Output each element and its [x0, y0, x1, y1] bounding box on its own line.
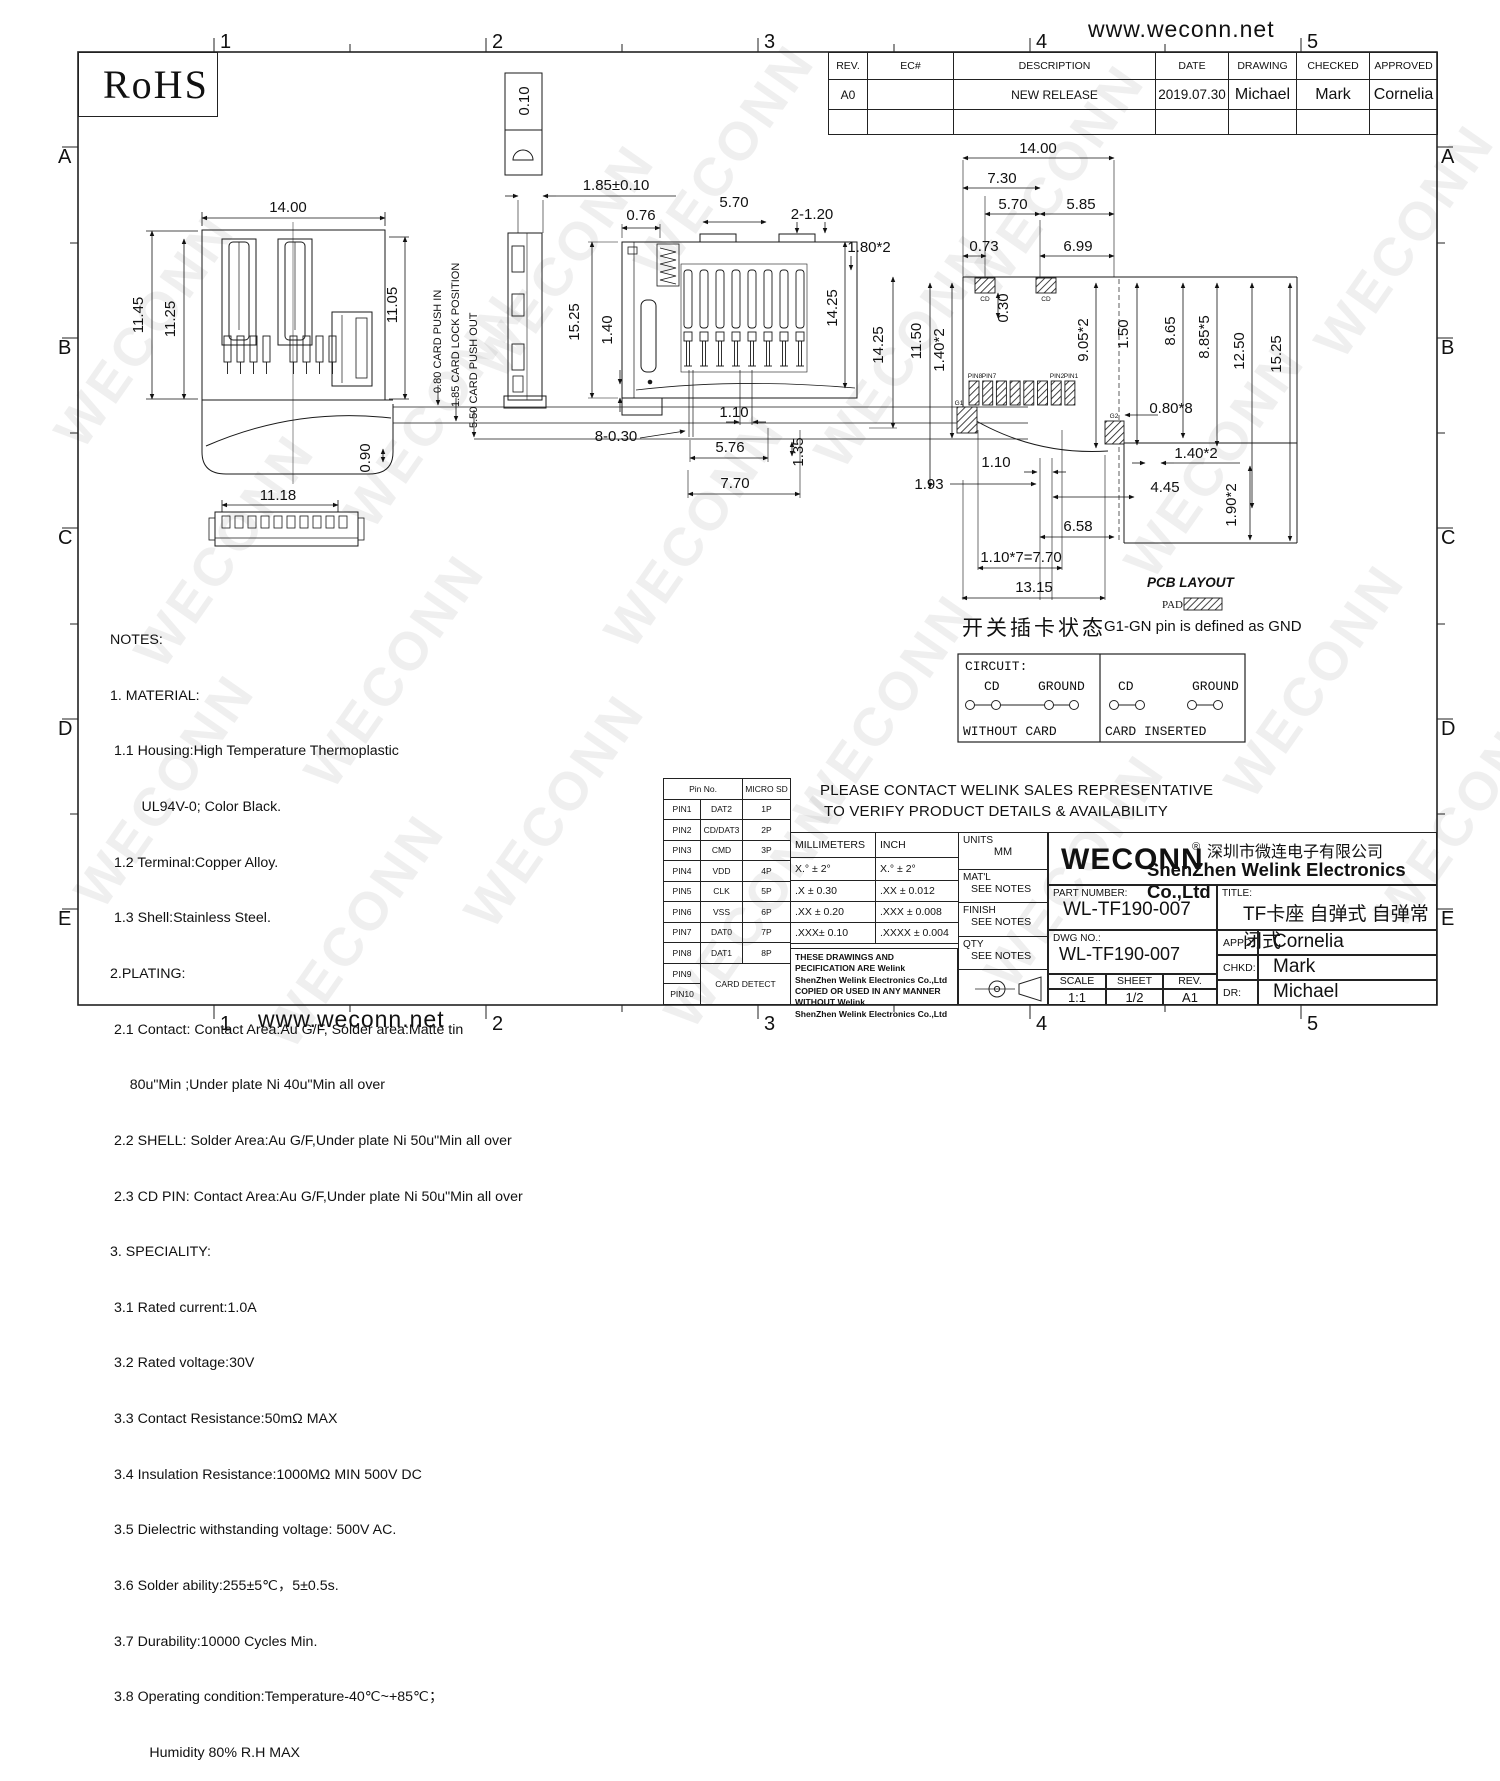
dim-label: 1.35	[790, 437, 807, 466]
svg-text:A: A	[58, 146, 72, 168]
note-line: 3. SPECIALITY:	[110, 1243, 523, 1262]
note-line: 3.8 Operating condition:Temperature-40℃~…	[110, 1688, 523, 1707]
dim-label: 8-0.30	[595, 428, 638, 445]
dim-label: 14.25	[870, 326, 887, 364]
pcb-view-dim-labels: 14.00 7.30 5.70 5.85 0.73 6.99 0.30 11.5…	[908, 140, 1285, 596]
micro-sd-header: MICRO SD	[743, 779, 791, 800]
note-line: 1.3 Shell:Stainless Steel.	[110, 909, 523, 928]
pin-table: Pin No. MICRO SD PIN1DAT21P PIN2CD/DAT32…	[663, 778, 791, 1005]
flatness-value: 0.10	[516, 86, 533, 115]
pin2-pad-label: PIN2	[1050, 373, 1065, 380]
notes-block: NOTES: 1. MATERIAL: 1.1 Housing:High Tem…	[110, 594, 523, 1781]
sheet-label: SHEET	[1106, 974, 1163, 989]
description-header: DESCRIPTION	[954, 53, 1156, 80]
approved-header: APPROVED	[1370, 53, 1438, 80]
table-row: PIN6VSS6P	[664, 902, 791, 923]
svg-text:3: 3	[764, 1013, 775, 1035]
svg-text:GROUND: GROUND	[1038, 679, 1085, 694]
card-lock-label: 1.85 CARD LOCK POSITION	[450, 263, 462, 407]
svg-text:GROUND: GROUND	[1192, 679, 1239, 694]
svg-text:4: 4	[1036, 1013, 1047, 1035]
without-card-label: WITHOUT CARD	[963, 724, 1057, 739]
pcb-layout-legend-pad: PAD	[1162, 599, 1183, 611]
dim-label: 1.40*2	[1174, 445, 1217, 462]
svg-text:CD: CD	[984, 679, 1000, 694]
svg-text:3: 3	[764, 31, 775, 53]
dwg-no-value: WL-TF190-007	[1049, 944, 1216, 965]
note-line: NOTES:	[110, 631, 523, 650]
tolerance-table: MILLIMETERSINCH X.° ± 2°X.° ± 2° .X ± 0.…	[790, 832, 959, 944]
chkd-label: CHKD:	[1217, 955, 1258, 980]
dim-label: 1.93	[914, 476, 943, 493]
dim-label: 0.90	[357, 443, 374, 472]
company-cell: WECONN ® 深圳市微连电子有限公司 ShenZhen Welink Ele…	[1048, 832, 1437, 885]
dim-label: 12.50	[1231, 332, 1248, 370]
dim-label: 14.00	[1019, 140, 1057, 157]
side-view	[504, 73, 546, 408]
dim-label: 13.15	[1015, 579, 1053, 596]
table-row: PIN2CD/DAT32P	[664, 820, 791, 841]
rohs-label: RoHS	[103, 61, 209, 108]
card-detect-cell: CARD DETECT	[701, 963, 791, 1004]
note-line: 1.2 Terminal:Copper Alloy.	[110, 854, 523, 873]
dim-label: 11.50	[908, 323, 925, 359]
rohs-box: RoHS	[78, 52, 218, 117]
scale-label: SCALE	[1048, 974, 1106, 989]
units-value: MM	[959, 846, 1047, 858]
chkd-value: Mark	[1258, 955, 1437, 980]
pin-no-header: Pin No.	[664, 779, 743, 800]
svg-text:A: A	[1441, 146, 1455, 168]
svg-text:B: B	[1441, 337, 1454, 359]
contact-note: PLEASE CONTACT WELINK SALES REPRESENTATI…	[820, 780, 1213, 822]
dim-label: 14.00	[269, 199, 307, 216]
checked-header: CHECKED	[1297, 53, 1370, 80]
switch-state-heading: 开关插卡状态	[962, 612, 1106, 642]
circuit-box-text: CIRCUIT: CD GROUND CD GROUND WITHOUT CAR…	[963, 659, 1239, 739]
note-line: 2.PLATING:	[110, 965, 523, 984]
gnd-note: G1-GN pin is defined as GND	[1104, 618, 1302, 635]
units-cell: UNITS MM	[958, 832, 1048, 870]
dim-label: 0.80*8	[1149, 400, 1192, 417]
date-value: 2019.07.30	[1156, 80, 1229, 110]
dim-label: 0.76	[626, 207, 655, 224]
dim-label: 5.70	[998, 196, 1027, 213]
pin7-pad-label: PIN7	[982, 373, 997, 380]
dr-label: DR:	[1217, 980, 1258, 1005]
qty-cell: QTY SEE NOTES	[958, 936, 1048, 970]
revision-table: REV. EC# DESCRIPTION DATE DRAWING CHECKE…	[828, 52, 1438, 135]
dwg-no-cell: DWG NO.: WL-TF190-007	[1048, 930, 1217, 974]
appd-label: APPD:	[1217, 930, 1258, 955]
website-top: www.weconn.net	[1088, 16, 1275, 43]
approved-value: Cornelia	[1370, 80, 1438, 110]
table-row: PIN8DAT18P	[664, 943, 791, 964]
note-line: 3.5 Dielectric withstanding voltage: 500…	[110, 1521, 523, 1540]
scale-value: 1:1	[1048, 989, 1106, 1005]
note-line: 3.2 Rated voltage:30V	[110, 1354, 523, 1373]
pcb-layout-legend-title: PCB LAYOUT	[1147, 575, 1236, 590]
table-row: PIN3CMD3P	[664, 840, 791, 861]
note-line: 2.3 CD PIN: Contact Area:Au G/F,Under pl…	[110, 1188, 523, 1207]
date-header: DATE	[1156, 53, 1229, 80]
mm-header: MILLIMETERS	[791, 833, 876, 858]
svg-text:4: 4	[1036, 31, 1047, 53]
dim-label: 7.30	[987, 170, 1016, 187]
projection-cell	[958, 969, 1048, 1005]
dim-label: 15.25	[566, 303, 583, 341]
dim-label: 1.40*2	[931, 328, 948, 371]
note-line: Humidity 80% R.H MAX	[110, 1744, 523, 1763]
dim-label: 1.80*2	[847, 239, 890, 256]
svg-text:D: D	[58, 718, 72, 740]
part-number-value: WL-TF190-007	[1049, 899, 1216, 921]
svg-text:5: 5	[1307, 1013, 1318, 1035]
pin1-pad-label: PIN1	[1064, 373, 1079, 380]
qty-value: SEE NOTES	[959, 950, 1047, 962]
dim-label: 11.45	[130, 297, 147, 333]
note-line: 2.1 Contact: Contact Area:Au G/F, Solder…	[110, 1021, 523, 1040]
rear-view-dim-labels: 0.76 5.70 2-1.20 1.80*2 15.25 1.40 14.25…	[566, 194, 891, 492]
checked-value: Mark	[1297, 80, 1370, 110]
drawing-value: Michael	[1229, 80, 1297, 110]
dim-label: 11.18	[260, 487, 296, 504]
table-row: PIN4VDD4P	[664, 861, 791, 882]
dim-label: 1.40	[599, 315, 616, 344]
dim-label: 9.05*2	[1075, 318, 1092, 361]
note-line: 80u"Min ;Under plate Ni 40u"Min all over	[110, 1076, 523, 1095]
matl-value: SEE NOTES	[959, 883, 1047, 895]
dim-label: 7.70	[720, 475, 749, 492]
svg-text:1: 1	[220, 31, 231, 53]
svg-text:B: B	[58, 337, 71, 359]
dim-label: 14.25	[824, 289, 841, 327]
svg-text:D: D	[1441, 718, 1455, 740]
card-push-in-label: 0.80 CARD PUSH IN	[432, 290, 444, 393]
dim-label: 1.10	[719, 404, 748, 421]
note-line: 1.1 Housing:High Temperature Thermoplast…	[110, 742, 523, 761]
svg-text:5: 5	[1307, 31, 1318, 53]
inch-header: INCH	[876, 833, 959, 858]
dim-label: 0.73	[969, 238, 998, 255]
dim-label: 5.76	[715, 439, 744, 456]
dim-label: 11.25	[162, 301, 179, 337]
table-row: PIN9 CARD DETECT	[664, 963, 791, 984]
dim-label: 1.10*7=7.70	[980, 549, 1061, 566]
dr-value: Michael	[1258, 980, 1437, 1005]
dim-label: 2-1.20	[791, 206, 834, 223]
description-value: NEW RELEASE	[954, 80, 1156, 110]
dim-label: 8.85*5	[1196, 315, 1213, 358]
svg-text:C: C	[58, 527, 72, 549]
dim-label: 1.90*2	[1223, 483, 1240, 526]
svg-text:2: 2	[492, 31, 503, 53]
dim-label: 6.58	[1063, 518, 1092, 535]
dim-label: 1.10	[981, 454, 1010, 471]
svg-text:E: E	[58, 908, 71, 930]
dim-label: 6.99	[1063, 238, 1092, 255]
table-row: PIN5CLK5P	[664, 881, 791, 902]
circuit-title: CIRCUIT:	[965, 659, 1027, 674]
dim-label: 1.50	[1115, 319, 1132, 348]
dim-label: 5.85	[1066, 196, 1095, 213]
ec-value	[868, 80, 954, 110]
matl-cell: MAT'L SEE NOTES	[958, 869, 1048, 903]
title-cell: TITLE: TF卡座 自弹式 自弹常闭式	[1217, 885, 1437, 930]
rev-value: A0	[829, 80, 868, 110]
g2-pad-label: G2	[1110, 413, 1119, 420]
table-row: PIN1DAT21P	[664, 799, 791, 820]
registered-mark: ®	[1192, 841, 1200, 853]
finish-value: SEE NOTES	[959, 916, 1047, 928]
front-view	[202, 222, 1028, 546]
rev-label: REV.	[1163, 974, 1217, 989]
dim-label: 1.85±0.10	[583, 177, 650, 194]
note-line: 3.1 Rated current:1.0A	[110, 1299, 523, 1318]
pin8-pad-label: PIN8	[968, 373, 983, 380]
cd-pad-label: CD	[980, 296, 990, 303]
card-inserted-label: CARD INSERTED	[1105, 724, 1207, 739]
drawing-header: DRAWING	[1229, 53, 1297, 80]
ec-header: EC#	[868, 53, 954, 80]
note-line: 3.3 Contact Resistance:50mΩ MAX	[110, 1410, 523, 1429]
dim-label: 0.30	[995, 293, 1012, 322]
rev-value: A1	[1163, 989, 1217, 1005]
appd-value: Cornelia	[1258, 930, 1437, 955]
dim-label: 8.65	[1162, 316, 1179, 345]
svg-text:E: E	[1441, 908, 1454, 930]
cd-pad-label: CD	[1041, 296, 1051, 303]
g1-pad-label: G1	[955, 400, 964, 407]
note-line: 3.7 Durability:10000 Cycles Min.	[110, 1633, 523, 1652]
note-line: 2.2 SHELL: Solder Area:Au G/F,Under plat…	[110, 1132, 523, 1151]
note-line: 3.6 Solder ability:255±5℃，5±0.5s.	[110, 1577, 523, 1596]
note-line: 1. MATERIAL:	[110, 687, 523, 706]
rev-header: REV.	[829, 53, 868, 80]
dim-label: 5.70	[719, 194, 748, 211]
part-number-cell: PART NUMBER: WL-TF190-007	[1048, 885, 1217, 930]
dim-label: 11.05	[384, 287, 401, 323]
title-block: WECONN ® 深圳市微连电子有限公司 ShenZhen Welink Ele…	[1048, 832, 1437, 1005]
svg-text:C: C	[1441, 527, 1455, 549]
note-line: UL94V-0; Color Black.	[110, 798, 523, 817]
dim-label: 15.25	[1268, 335, 1285, 373]
finish-cell: FINISH SEE NOTES	[958, 902, 1048, 937]
dim-label: 4.45	[1150, 479, 1179, 496]
legal-note: THESE DRAWINGS AND PECIFICATION ARE Weli…	[790, 948, 958, 1005]
card-push-out-label: 5.50 CARD PUSH OUT	[468, 312, 480, 428]
note-line: 3.4 Insulation Resistance:1000MΩ MIN 500…	[110, 1466, 523, 1485]
table-row: PIN7DAT07P	[664, 922, 791, 943]
svg-text:CD: CD	[1118, 679, 1134, 694]
sheet-value: 1/2	[1106, 989, 1163, 1005]
